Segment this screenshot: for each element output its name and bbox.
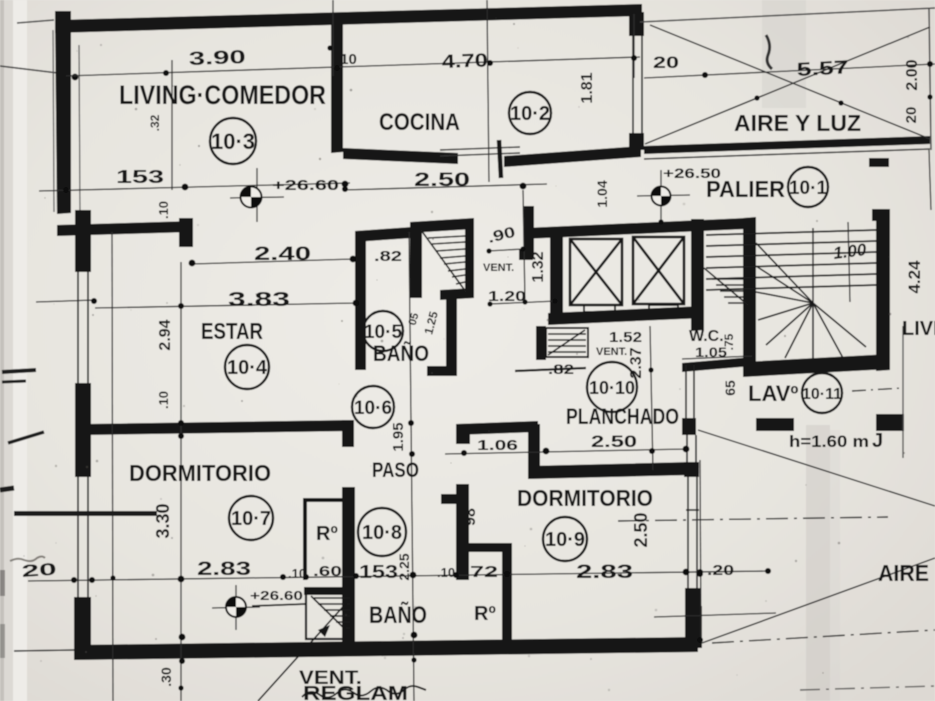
svg-text:10·5: 10·5 (364, 322, 402, 343)
svg-text:1.52: 1.52 (609, 329, 642, 346)
svg-text:.82: .82 (548, 361, 574, 377)
svg-text:LAVº: LAVº (748, 381, 798, 406)
svg-text:1.95: 1.95 (390, 422, 407, 451)
svg-text:.60: .60 (313, 563, 342, 580)
svg-text:.10: .10 (336, 51, 357, 68)
svg-text:AIRE: AIRE (878, 560, 929, 586)
svg-text:1.04: 1.04 (594, 180, 610, 207)
svg-text:Rº: Rº (316, 523, 338, 545)
svg-text:3.30: 3.30 (153, 503, 173, 538)
svg-text:+26.60: +26.60 (250, 589, 303, 603)
svg-text:.10: .10 (288, 566, 306, 581)
svg-text:VENT.: VENT. (596, 346, 627, 358)
svg-text:.10: .10 (437, 565, 455, 580)
svg-text:.20: .20 (707, 562, 734, 579)
svg-text:10·3: 10·3 (211, 129, 255, 154)
svg-text:LIVI: LIVI (902, 318, 935, 340)
svg-text:BAÑO: BAÑO (369, 601, 427, 629)
svg-text:BAÑO: BAÑO (373, 341, 429, 366)
svg-text:.10: .10 (156, 201, 171, 219)
svg-text:2.50: 2.50 (631, 512, 651, 547)
svg-text:Rº: Rº (474, 603, 496, 625)
svg-text:3.90: 3.90 (188, 47, 246, 70)
svg-text:2.50: 2.50 (414, 170, 470, 191)
svg-text:10·11: 10·11 (802, 386, 842, 403)
svg-text:REGLAM: REGLAM (303, 683, 408, 701)
svg-text:AIRE Y LUZ: AIRE Y LUZ (734, 110, 861, 136)
svg-text:1.20: 1.20 (488, 288, 526, 305)
svg-text:.82: .82 (374, 248, 402, 265)
svg-text:2.25: 2.25 (396, 553, 412, 580)
svg-text:ESTAR: ESTAR (201, 318, 263, 344)
svg-text:1.06: 1.06 (477, 437, 518, 454)
svg-text:COCINA: COCINA (379, 109, 460, 136)
svg-text:2.94: 2.94 (157, 319, 174, 350)
svg-text:+26.60: +26.60 (272, 177, 339, 194)
svg-text:98: 98 (462, 508, 479, 526)
svg-text:20: 20 (903, 107, 920, 124)
svg-text:4.70: 4.70 (441, 50, 488, 73)
svg-text:1.32: 1.32 (530, 251, 547, 282)
svg-text:10·1: 10·1 (789, 178, 827, 199)
svg-text:J: J (872, 430, 883, 452)
svg-text:2.50: 2.50 (591, 432, 637, 451)
svg-text:DORMITORIO: DORMITORIO (129, 460, 271, 486)
svg-text:PASO: PASO (372, 459, 419, 482)
svg-text:2.00: 2.00 (904, 59, 921, 90)
svg-text:10·10: 10·10 (589, 378, 635, 398)
svg-text:65: 65 (722, 380, 738, 396)
svg-text:10·6: 10·6 (354, 398, 392, 419)
svg-text:72: 72 (470, 564, 498, 581)
svg-text:153: 153 (116, 167, 164, 187)
svg-text:10·2: 10·2 (510, 103, 550, 125)
svg-text:2.83: 2.83 (197, 559, 251, 580)
svg-text:10·9: 10·9 (545, 529, 585, 551)
svg-text:.10: .10 (156, 391, 171, 409)
svg-text:153: 153 (359, 562, 398, 582)
svg-text:1.81: 1.81 (579, 72, 596, 103)
svg-text:W.C.: W.C. (689, 328, 724, 345)
svg-text:h=1.60 m: h=1.60 m (789, 432, 869, 451)
svg-text:20: 20 (653, 53, 679, 72)
svg-text:10·8: 10·8 (362, 522, 402, 544)
svg-text:.32: .32 (148, 114, 162, 131)
svg-text:10·7: 10·7 (231, 508, 271, 530)
svg-text:4.24: 4.24 (905, 260, 924, 294)
svg-text:DORMITORIO: DORMITORIO (517, 485, 653, 511)
svg-text:+26.50: +26.50 (663, 166, 721, 181)
svg-text:VENT.: VENT. (483, 262, 514, 274)
svg-text:5.57: 5.57 (796, 57, 849, 81)
svg-text:10·4: 10·4 (227, 357, 268, 379)
svg-text:2.83: 2.83 (576, 562, 633, 583)
svg-text:2.37: 2.37 (628, 347, 645, 378)
svg-text:LIVING·COMEDOR: LIVING·COMEDOR (119, 80, 326, 110)
svg-text:20: 20 (21, 560, 57, 581)
svg-text:2.40: 2.40 (254, 244, 311, 265)
svg-text:3.83: 3.83 (228, 289, 290, 311)
svg-text:.30: .30 (158, 667, 174, 687)
svg-text:1.00: 1.00 (832, 240, 868, 263)
svg-text:.75: .75 (722, 333, 736, 350)
svg-text:PLANCHADO: PLANCHADO (566, 404, 679, 429)
